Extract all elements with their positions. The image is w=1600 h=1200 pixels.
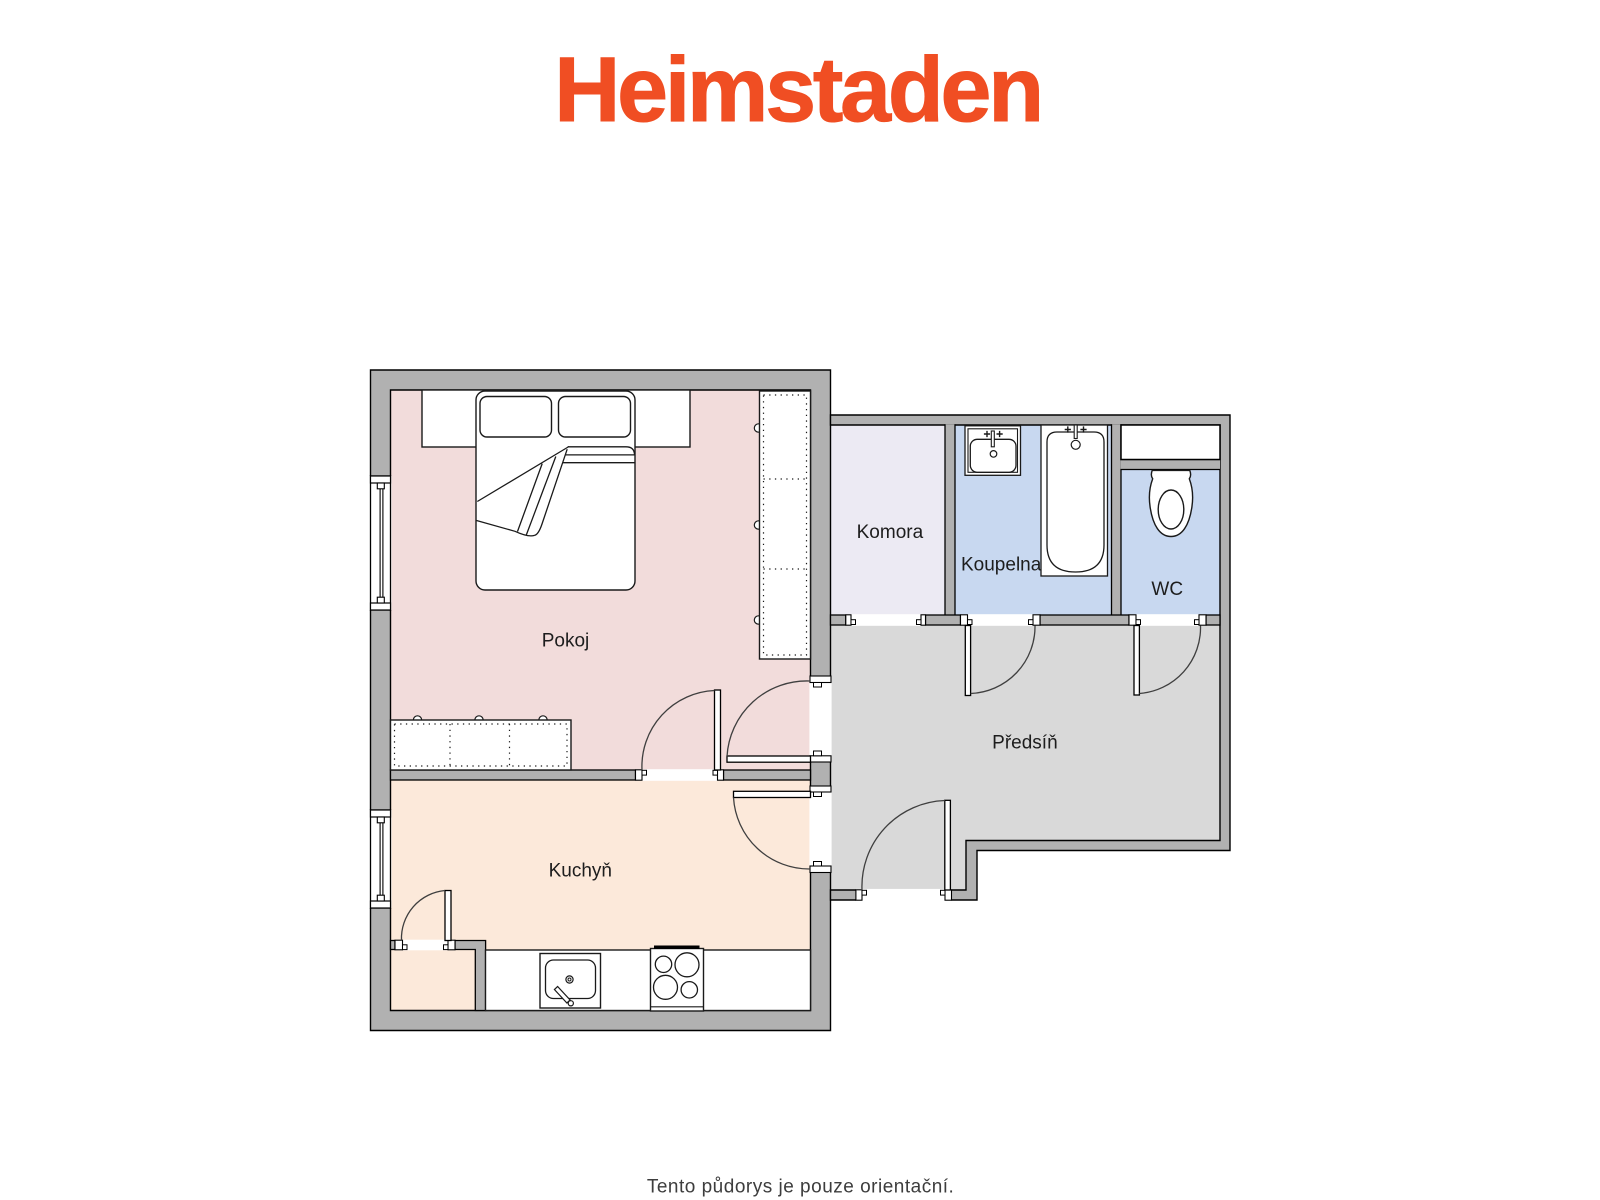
svg-text:Komora: Komora [857,522,924,543]
svg-text:Kuchyň: Kuchyň [549,861,612,882]
svg-text:Koupelna: Koupelna [961,555,1042,576]
svg-text:WC: WC [1151,579,1183,600]
svg-text:Tento půdorys je pouze orienta: Tento půdorys je pouze orientační. [647,1177,954,1198]
svg-text:Pokoj: Pokoj [542,630,590,651]
svg-text:Předsíň: Předsíň [992,733,1057,754]
svg-text:Heimstaden: Heimstaden [554,39,1041,141]
